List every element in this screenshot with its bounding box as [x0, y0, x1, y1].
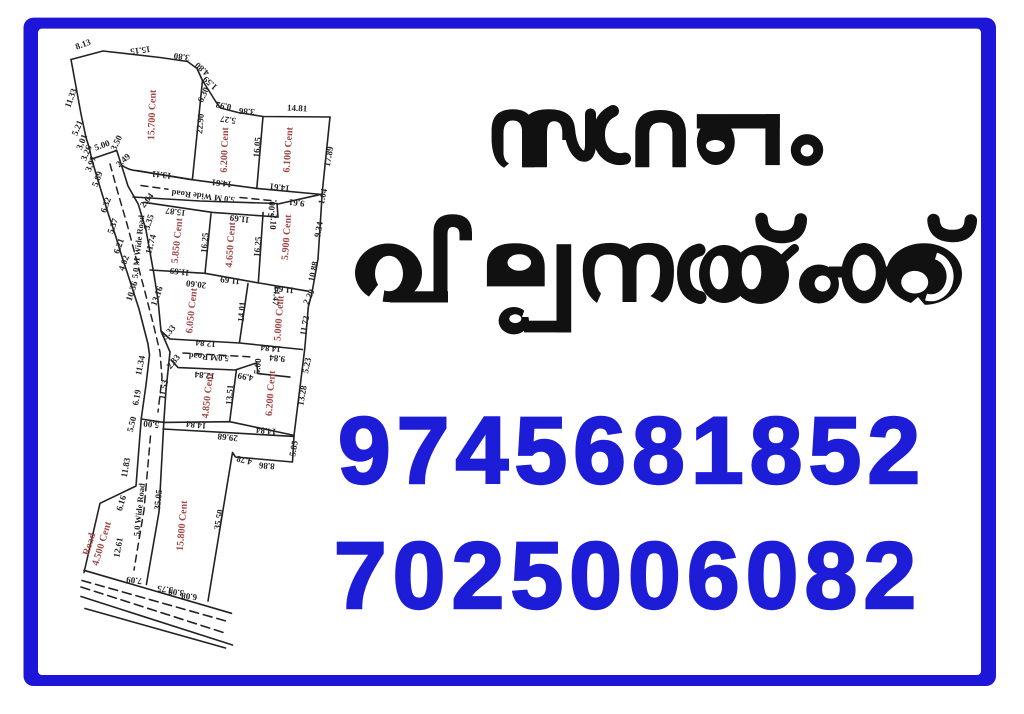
svg-text:15.700 Cent: 15.700 Cent [146, 89, 159, 141]
svg-text:14.01: 14.01 [236, 301, 248, 323]
svg-text:5.00: 5.00 [252, 357, 263, 374]
svg-text:22.90: 22.90 [194, 113, 206, 135]
svg-text:16.05: 16.05 [251, 136, 263, 158]
svg-text:6.200 Cent: 6.200 Cent [219, 126, 232, 173]
svg-text:6.08: 6.08 [180, 590, 197, 602]
svg-text:3.86: 3.86 [238, 106, 255, 117]
svg-text:8.86: 8.86 [258, 460, 275, 471]
svg-text:7.09: 7.09 [125, 574, 142, 586]
svg-text:14.81: 14.81 [287, 102, 308, 113]
svg-text:7025006082: 7025006082 [334, 523, 922, 629]
svg-text:9.84: 9.84 [268, 353, 285, 365]
svg-text:16.25: 16.25 [252, 236, 264, 258]
svg-text:13.51: 13.51 [224, 384, 236, 406]
svg-text:2.10: 2.10 [268, 213, 279, 230]
svg-text:16.25: 16.25 [199, 232, 211, 254]
svg-text:5.00: 5.00 [142, 419, 159, 431]
svg-text:9745681852: 9745681852 [338, 398, 926, 504]
svg-text:9.61: 9.61 [288, 197, 305, 209]
